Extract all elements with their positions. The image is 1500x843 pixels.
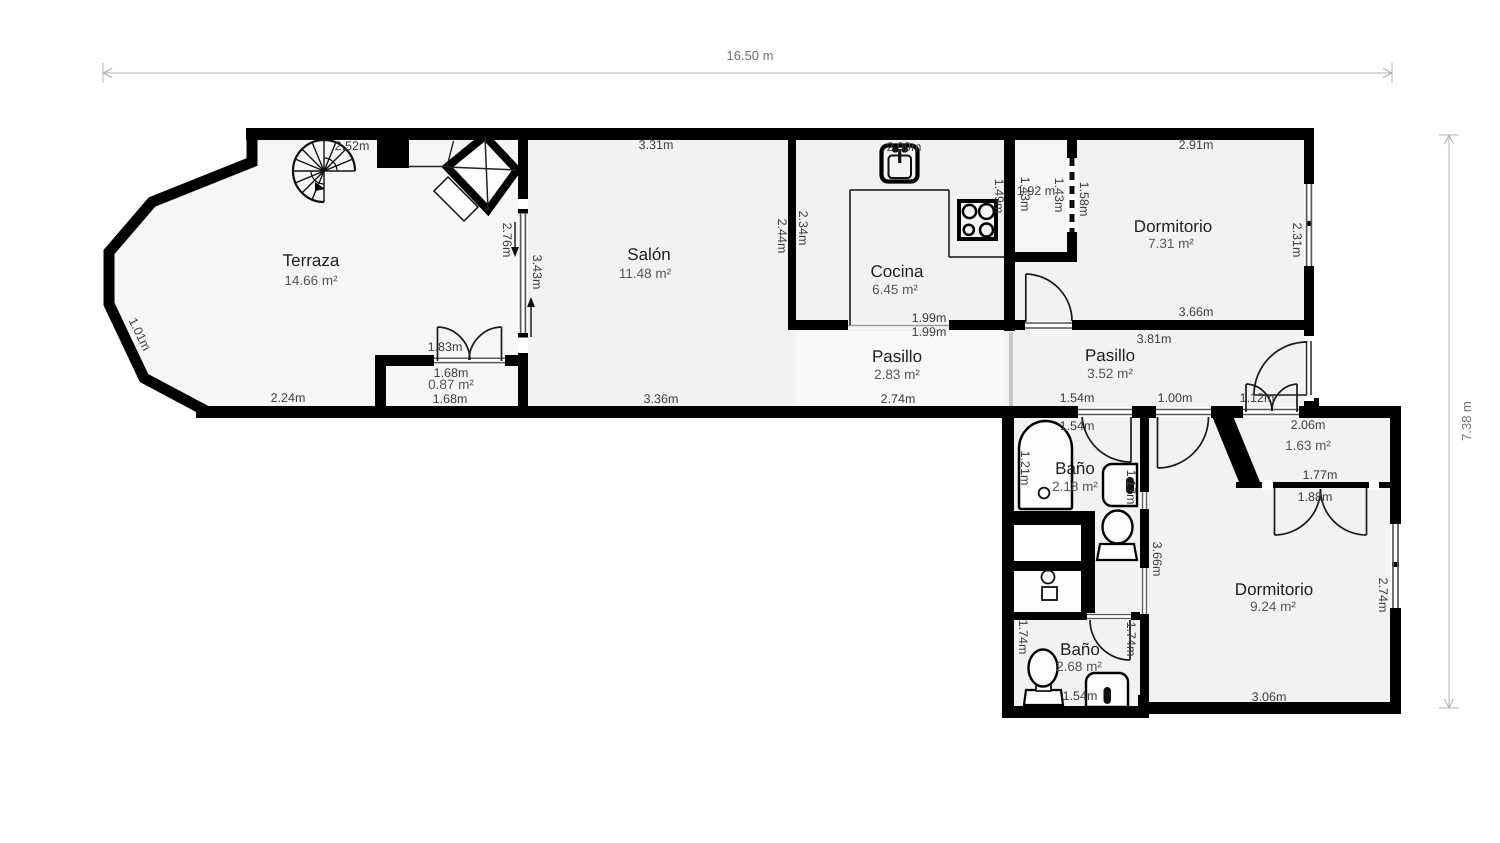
svg-text:11.48 m²: 11.48 m² xyxy=(619,266,672,281)
svg-text:2.74m: 2.74m xyxy=(881,392,916,406)
svg-text:Salón: Salón xyxy=(627,245,670,264)
svg-text:16.50 m: 16.50 m xyxy=(727,48,774,63)
svg-text:14.66 m²: 14.66 m² xyxy=(284,273,338,288)
svg-text:3.06m: 3.06m xyxy=(1252,690,1287,704)
svg-text:Terraza: Terraza xyxy=(283,251,340,270)
svg-text:1.00m: 1.00m xyxy=(1158,391,1193,405)
svg-text:2.74m: 2.74m xyxy=(1376,578,1390,613)
svg-text:2.24m: 2.24m xyxy=(271,391,306,405)
svg-text:2.91m: 2.91m xyxy=(1179,138,1214,152)
svg-text:3.81m: 3.81m xyxy=(1137,332,1172,346)
svg-text:1.49m: 1.49m xyxy=(992,179,1006,214)
svg-text:1.54m: 1.54m xyxy=(1060,391,1095,405)
svg-text:2.76m: 2.76m xyxy=(500,223,514,258)
svg-text:3.31m: 3.31m xyxy=(639,138,674,152)
svg-text:1.17m: 1.17m xyxy=(1124,470,1138,505)
svg-text:2.31m: 2.31m xyxy=(1290,223,1304,258)
svg-text:1.12m: 1.12m xyxy=(1240,391,1275,405)
svg-text:1.43m: 1.43m xyxy=(1052,178,1066,213)
svg-text:2.34m: 2.34m xyxy=(796,211,810,246)
svg-text:0.87 m²: 0.87 m² xyxy=(428,377,474,392)
svg-text:3.36m: 3.36m xyxy=(644,392,679,406)
svg-text:6.45 m²: 6.45 m² xyxy=(872,282,918,297)
svg-text:7.31 m²: 7.31 m² xyxy=(1148,236,1194,251)
svg-text:2.06m: 2.06m xyxy=(1291,418,1326,432)
svg-text:2.44m: 2.44m xyxy=(775,219,789,254)
svg-text:1.74m: 1.74m xyxy=(1124,622,1138,657)
svg-text:2.83 m²: 2.83 m² xyxy=(874,367,920,382)
svg-text:1.63 m²: 1.63 m² xyxy=(1285,438,1331,453)
svg-text:2.18 m²: 2.18 m² xyxy=(1052,479,1098,494)
svg-text:1.88m: 1.88m xyxy=(1298,490,1333,504)
svg-text:2.09m: 2.09m xyxy=(887,140,922,154)
svg-text:1.74m: 1.74m xyxy=(1016,620,1030,655)
svg-text:Dormitorio: Dormitorio xyxy=(1235,580,1313,599)
svg-text:1.68m: 1.68m xyxy=(433,392,468,406)
svg-text:3.66m: 3.66m xyxy=(1150,542,1164,577)
svg-text:1.54m: 1.54m xyxy=(1063,689,1098,703)
svg-text:1.21m: 1.21m xyxy=(1018,451,1032,486)
svg-text:2.52m: 2.52m xyxy=(335,139,370,153)
svg-text:Baño: Baño xyxy=(1055,459,1095,478)
svg-text:1.77m: 1.77m xyxy=(1303,468,1338,482)
svg-text:1.99m: 1.99m xyxy=(912,311,947,325)
svg-text:Pasillo: Pasillo xyxy=(872,347,922,366)
svg-text:2.68 m²: 2.68 m² xyxy=(1056,659,1102,674)
svg-text:1.58m: 1.58m xyxy=(1077,182,1091,217)
svg-text:1.83m: 1.83m xyxy=(428,340,463,354)
svg-text:Cocina: Cocina xyxy=(871,262,924,281)
svg-text:7.38 m: 7.38 m xyxy=(1459,401,1474,441)
svg-text:Dormitorio: Dormitorio xyxy=(1134,217,1212,236)
svg-text:9.24 m²: 9.24 m² xyxy=(1250,599,1296,614)
svg-text:1.54m: 1.54m xyxy=(1060,419,1095,433)
svg-text:Baño: Baño xyxy=(1060,640,1100,659)
svg-text:Pasillo: Pasillo xyxy=(1085,346,1135,365)
svg-text:3.52 m²: 3.52 m² xyxy=(1087,366,1133,381)
svg-text:1.99m: 1.99m xyxy=(912,325,947,339)
svg-text:1.43m: 1.43m xyxy=(1018,177,1032,212)
svg-text:3.43m: 3.43m xyxy=(530,255,544,290)
svg-text:3.66m: 3.66m xyxy=(1179,305,1214,319)
